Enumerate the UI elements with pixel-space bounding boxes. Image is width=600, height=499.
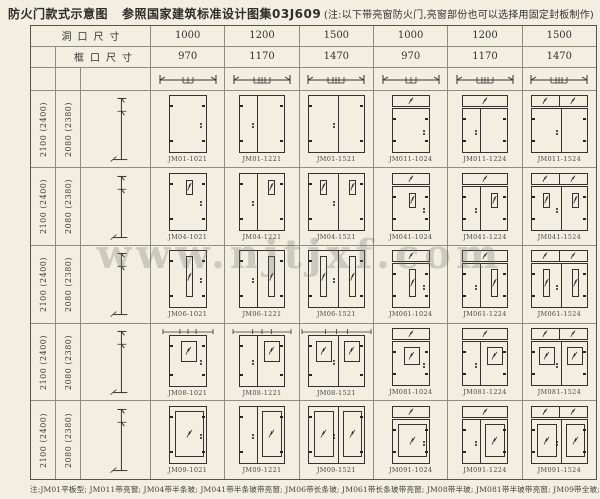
door-handle-icon (475, 211, 477, 213)
hinge-mark (240, 374, 243, 376)
hinge-mark (583, 373, 586, 375)
glass-hatch-icon (570, 252, 576, 260)
door-model-label: JM09-1221 (243, 466, 282, 474)
hinge-mark (503, 273, 506, 275)
width-dimension-row (31, 68, 596, 91)
transom-pane (393, 407, 429, 417)
hinge-mark (309, 260, 312, 262)
door-cell: JM01-1021 (151, 91, 225, 168)
width-dimension-diagram (153, 68, 223, 89)
width-dimension-diagram (376, 68, 446, 89)
frame-size-value: 1470 (300, 47, 374, 67)
glass-hatch-icon (570, 408, 576, 416)
door-figure (308, 335, 365, 387)
door-model-label: JM091-1024 (389, 466, 432, 474)
door-cell: JM091-1024 (374, 401, 448, 479)
transom-pane (559, 329, 587, 339)
hinge-mark (463, 118, 466, 120)
hinge-mark (532, 218, 535, 220)
glass-hatch-icon (482, 330, 488, 338)
door-handle-icon (423, 444, 425, 446)
glass-hatch-icon (408, 408, 414, 416)
door-handle-icon (333, 437, 335, 439)
door-cell: JM011-1224 (448, 91, 522, 168)
door-model-label: JM04-1521 (317, 233, 356, 241)
door-figure (392, 406, 430, 464)
leaf-divider (561, 420, 562, 463)
hinge-mark (309, 105, 312, 107)
frame-height-label: 2080 (2380) (64, 413, 73, 468)
transom-pane (532, 251, 559, 261)
door-leaf-drawing (462, 341, 508, 386)
glass-hatch-icon (269, 272, 274, 282)
transom-window (462, 328, 508, 340)
transom-pane (393, 251, 429, 261)
door-leaf-drawing (462, 108, 508, 153)
transom-pane (532, 96, 559, 106)
door-leaf-drawing (531, 341, 588, 386)
door-figure (239, 406, 285, 464)
glass-hatch-icon (544, 195, 549, 205)
leaf-divider (338, 407, 339, 463)
glass-hatch-icon (573, 278, 578, 288)
height-dimension-cell (81, 246, 151, 323)
door-figure (531, 406, 588, 464)
frame-size-value: 1470 (523, 47, 596, 67)
door-leaf-drawing (462, 263, 508, 308)
door-cell: JM091-1524 (523, 401, 596, 479)
hinge-mark (425, 218, 428, 220)
hinge-mark (583, 218, 586, 220)
hinge-mark (393, 273, 396, 275)
hole-size-value: 1000 (374, 26, 448, 46)
door-cell: JM061-1224 (448, 246, 522, 323)
glass-hatch-icon (492, 195, 497, 205)
hinge-mark (463, 273, 466, 275)
transom-pane (532, 407, 559, 417)
hinge-mark (532, 429, 535, 431)
door-model-label: JM06-1221 (243, 310, 282, 318)
hinge-mark (360, 295, 363, 297)
leaf-divider (480, 187, 481, 230)
hinge-mark (425, 373, 428, 375)
glass-pane (320, 256, 327, 297)
frame-height: 2080 (2380) (56, 324, 81, 401)
glass-hatch-icon (573, 195, 578, 205)
glass-pane (314, 411, 334, 457)
hinge-mark (393, 295, 396, 297)
door-cell: JM041-1524 (523, 168, 596, 245)
door-handle-icon (556, 211, 558, 213)
door-leaf-drawing (531, 419, 588, 464)
hole-height: 2100 (2400) (31, 91, 56, 168)
glass-pane (316, 341, 332, 362)
hinge-mark (240, 345, 243, 347)
leaf-divider (257, 251, 258, 307)
glass-hatch-icon (408, 351, 415, 361)
header-row-hole-size: 洞口尺寸 1000 1200 1500 1000 1200 1500 (31, 26, 596, 47)
door-leaf-drawing (169, 95, 207, 153)
hinge-mark (360, 345, 363, 347)
door-figure (169, 406, 207, 464)
transom-window (531, 250, 588, 262)
door-handle-icon (200, 434, 202, 436)
hinge-mark (202, 374, 205, 376)
glass-hatch-icon (409, 436, 416, 446)
door-handle-icon (200, 363, 202, 365)
hinge-mark (463, 140, 466, 142)
door-cell: JM011-1524 (523, 91, 596, 168)
door-model-label: JM081-1024 (389, 388, 432, 396)
door-handle-icon (200, 278, 202, 280)
glass-hatch-icon (542, 330, 548, 338)
door-handle-icon (252, 201, 254, 203)
transom-pane (463, 251, 507, 261)
transom-window (392, 328, 430, 340)
transom-window (531, 406, 588, 418)
door-handle-icon (556, 130, 558, 132)
hinge-mark (280, 105, 283, 107)
hinge-mark (583, 118, 586, 120)
door-figure (308, 250, 365, 308)
glass-hatch-icon (542, 175, 548, 183)
frame-height-label: 2080 (2380) (64, 257, 73, 312)
hinge-mark (309, 416, 312, 418)
door-handle-icon (556, 366, 558, 368)
door-figure (462, 95, 508, 153)
hinge-mark (503, 140, 506, 142)
width-dimension-diagram (227, 68, 297, 89)
frame-size-value: 1170 (448, 47, 522, 67)
glass-pane (543, 193, 550, 208)
transom-window (462, 173, 508, 185)
hinge-mark (240, 295, 243, 297)
hinge-mark (309, 140, 312, 142)
hinge-mark (425, 196, 428, 198)
hole-height-label: 2100 (2400) (39, 335, 48, 390)
door-handle-icon (333, 126, 335, 128)
door-cell: JM081-1224 (448, 324, 522, 401)
door-handle-icon (333, 281, 335, 283)
legend-footnote: 注:JM01平板型; JM011带亮窗; JM04带半条玻; JM041带半条玻… (30, 484, 596, 495)
door-figure (462, 328, 508, 386)
door-handle-icon (556, 288, 558, 290)
door-leaf-drawing (308, 95, 365, 153)
leaf-divider (257, 174, 258, 230)
transom-window (462, 406, 508, 418)
glass-pane (268, 256, 275, 297)
door-model-label: JM041-1024 (389, 233, 432, 241)
door-handle-icon (423, 208, 425, 210)
glass-hatch-icon (349, 429, 356, 439)
door-leaf-drawing (308, 173, 365, 231)
glass-hatch-icon (482, 175, 488, 183)
glass-hatch-icon (187, 272, 192, 282)
hinge-mark (280, 451, 283, 453)
door-handle-icon (423, 133, 425, 135)
width-dimension-diagram (524, 68, 594, 89)
hinge-mark (202, 105, 205, 107)
door-figure (392, 328, 430, 386)
door-handle-icon (200, 360, 202, 362)
hole-height: 2100 (2400) (31, 324, 56, 401)
glass-pane (572, 269, 579, 297)
hinge-mark (309, 451, 312, 453)
door-top-dimension-diagram (161, 328, 215, 334)
height-dimension-diagram (81, 169, 150, 245)
hole-size-value: 1000 (151, 26, 225, 46)
hole-height: 2100 (2400) (31, 246, 56, 323)
hinge-mark (240, 416, 243, 418)
frame-size-label: 框口尺寸 (56, 47, 151, 67)
glass-pane (181, 341, 197, 362)
hinge-mark (532, 273, 535, 275)
door-figure (392, 250, 430, 308)
leaf-divider (561, 264, 562, 307)
door-top-dimension-diagram (300, 328, 373, 334)
leaf-divider (338, 336, 339, 386)
door-cell: JM01-1521 (300, 91, 374, 168)
title-note: (注:以下带亮窗防火门,亮窗部份也可以选择用固定封板制作) (324, 6, 594, 21)
hinge-mark (202, 218, 205, 220)
glass-pane (264, 341, 280, 362)
hinge-mark (503, 295, 506, 297)
width-dimension-diagram (450, 68, 520, 89)
door-cell: JM09-1221 (225, 401, 299, 479)
door-model-label: JM04-1021 (168, 233, 207, 241)
door-cell: JM08-1021 (151, 324, 225, 401)
hole-size-value: 1500 (300, 26, 374, 46)
hinge-mark (202, 140, 205, 142)
glass-pane (539, 347, 555, 365)
transom-window (462, 250, 508, 262)
hinge-mark (532, 373, 535, 375)
hinge-mark (280, 295, 283, 297)
door-cell: JM06-1221 (225, 246, 299, 323)
hinge-mark (170, 345, 173, 347)
door-model-label: JM091-1224 (463, 466, 506, 474)
hinge-mark (202, 416, 205, 418)
hinge-mark (360, 451, 363, 453)
door-handle-icon (423, 366, 425, 368)
transom-pane (463, 407, 507, 417)
transom-pane (559, 251, 587, 261)
glass-pane (485, 424, 505, 457)
height-dimension-cell (81, 168, 151, 245)
door-handle-icon (423, 211, 425, 213)
door-figure (239, 173, 285, 231)
hole-size-value: 1500 (523, 26, 596, 46)
door-handle-icon (423, 288, 425, 290)
transom-pane (559, 96, 587, 106)
door-row: 2100 (2400)2080 (2380)JM04-1021JM04-1221… (31, 168, 596, 246)
glass-pane (186, 180, 193, 195)
glass-hatch-icon (410, 195, 415, 205)
hinge-mark (280, 416, 283, 418)
hinge-mark (393, 218, 396, 220)
hinge-mark (360, 374, 363, 376)
frame-height-label: 2080 (2380) (64, 335, 73, 390)
hinge-mark (309, 345, 312, 347)
hinge-mark (583, 295, 586, 297)
door-leaf-drawing (308, 406, 365, 464)
hinge-mark (463, 351, 466, 353)
door-model-label: JM041-1524 (538, 233, 581, 241)
transom-pane (532, 174, 559, 184)
title-bar: 防火门款式示意图参照国家建筑标准设计图集03J609 (注:以下带亮窗防火门,亮… (8, 3, 594, 22)
glass-pane (487, 347, 503, 365)
door-handle-icon (556, 363, 558, 365)
door-model-label: JM081-1524 (538, 388, 581, 396)
door-row: 2100 (2400)2080 (2380)JM09-1021JM09-1221… (31, 401, 596, 479)
leaf-divider (480, 264, 481, 307)
page-title: 防火门款式示意图参照国家建筑标准设计图集03J609 (8, 3, 321, 22)
door-cell: JM09-1521 (300, 401, 374, 479)
height-dimension-diagram (81, 91, 150, 167)
door-leaf-drawing (531, 263, 588, 308)
door-figure (462, 250, 508, 308)
hole-height-label: 2100 (2400) (39, 179, 48, 234)
door-figure (531, 173, 588, 231)
glass-hatch-icon (321, 182, 326, 192)
door-figure (308, 173, 365, 231)
transom-pane (463, 174, 507, 184)
hinge-mark (425, 273, 428, 275)
door-handle-icon (475, 208, 477, 210)
door-row: 2100 (2400)2080 (2380)JM06-1021JM06-1221… (31, 246, 596, 324)
glass-pane (349, 256, 356, 297)
hole-size-value: 1200 (448, 26, 522, 46)
hinge-mark (280, 260, 283, 262)
hinge-mark (360, 416, 363, 418)
glass-hatch-icon (570, 97, 576, 105)
glass-hatch-icon (482, 97, 488, 105)
door-handle-icon (423, 363, 425, 365)
frame-size-value: 1170 (225, 47, 299, 67)
door-model-label: JM061-1524 (538, 310, 581, 318)
door-model-label: JM041-1224 (463, 233, 506, 241)
glass-hatch-icon (542, 408, 548, 416)
hinge-mark (393, 118, 396, 120)
door-cell: JM061-1524 (523, 246, 596, 323)
glass-pane (320, 180, 327, 195)
door-handle-icon (200, 201, 202, 203)
door-leaf-drawing (169, 406, 207, 464)
door-handle-icon (423, 441, 425, 443)
hinge-mark (170, 105, 173, 107)
hinge-mark (170, 260, 173, 262)
hinge-mark (240, 451, 243, 453)
glass-pane (262, 411, 282, 457)
width-dimension-cell (225, 68, 299, 90)
hinge-mark (202, 295, 205, 297)
door-cell: JM04-1021 (151, 168, 225, 245)
glass-hatch-icon (572, 436, 579, 446)
hinge-mark (393, 140, 396, 142)
transom-pane (559, 407, 587, 417)
hinge-mark (240, 105, 243, 107)
hole-height: 2100 (2400) (31, 168, 56, 245)
height-dimension-cell (81, 91, 151, 168)
glass-hatch-icon (320, 429, 327, 439)
hinge-mark (503, 351, 506, 353)
door-cell: JM09-1021 (151, 401, 225, 479)
door-handle-icon (475, 366, 477, 368)
door-model-label: JM061-1024 (389, 310, 432, 318)
frame-size-value: 970 (151, 47, 225, 67)
door-model-label: JM081-1224 (463, 388, 506, 396)
glass-hatch-icon (408, 175, 414, 183)
door-figure (239, 250, 285, 308)
glass-hatch-icon (269, 182, 274, 192)
door-model-label: JM011-1524 (538, 155, 581, 163)
door-handle-icon (252, 204, 254, 206)
width-dimension-cell (374, 68, 448, 90)
door-leaf-drawing (392, 419, 430, 464)
leaf-divider (338, 251, 339, 307)
door-handle-icon (252, 123, 254, 125)
width-dimension-cell (523, 68, 596, 90)
door-handle-icon (252, 437, 254, 439)
width-dimension-diagram (301, 68, 371, 89)
hinge-mark (280, 345, 283, 347)
glass-pane (491, 269, 498, 297)
leaf-divider (561, 187, 562, 230)
hinge-mark (425, 140, 428, 142)
glass-pane (409, 269, 416, 297)
hinge-mark (532, 118, 535, 120)
glass-pane (344, 341, 360, 362)
door-handle-icon (200, 204, 202, 206)
door-handle-icon (556, 444, 558, 446)
leaf-divider (561, 109, 562, 152)
glass-hatch-icon (268, 346, 275, 356)
door-figure (308, 406, 365, 464)
hinge-mark (393, 429, 396, 431)
door-figure (531, 95, 588, 153)
door-handle-icon (200, 126, 202, 128)
door-figure (462, 173, 508, 231)
hinge-mark (170, 140, 173, 142)
door-handle-icon (556, 133, 558, 135)
door-handle-icon (423, 130, 425, 132)
hinge-mark (240, 260, 243, 262)
door-cell: JM091-1224 (448, 401, 522, 479)
glass-pane (409, 193, 416, 208)
door-leaf-drawing (462, 419, 508, 464)
door-handle-icon (252, 281, 254, 283)
hinge-mark (532, 295, 535, 297)
transom-window (392, 95, 430, 107)
glass-hatch-icon (491, 436, 498, 446)
door-model-label: JM01-1021 (168, 155, 207, 163)
glass-hatch-icon (570, 175, 576, 183)
hinge-mark (583, 273, 586, 275)
door-handle-icon (252, 434, 254, 436)
glass-hatch-icon (542, 97, 548, 105)
glass-hatch-icon (408, 97, 414, 105)
hinge-mark (170, 183, 173, 185)
door-leaf-drawing (169, 335, 207, 387)
hole-size-value: 1200 (225, 26, 299, 46)
door-cell: JM061-1024 (374, 246, 448, 323)
height-dimension-diagram (81, 402, 150, 478)
hinge-mark (202, 345, 205, 347)
hinge-mark (202, 451, 205, 453)
hinge-mark (309, 374, 312, 376)
hinge-mark (425, 118, 428, 120)
hinge-mark (393, 373, 396, 375)
